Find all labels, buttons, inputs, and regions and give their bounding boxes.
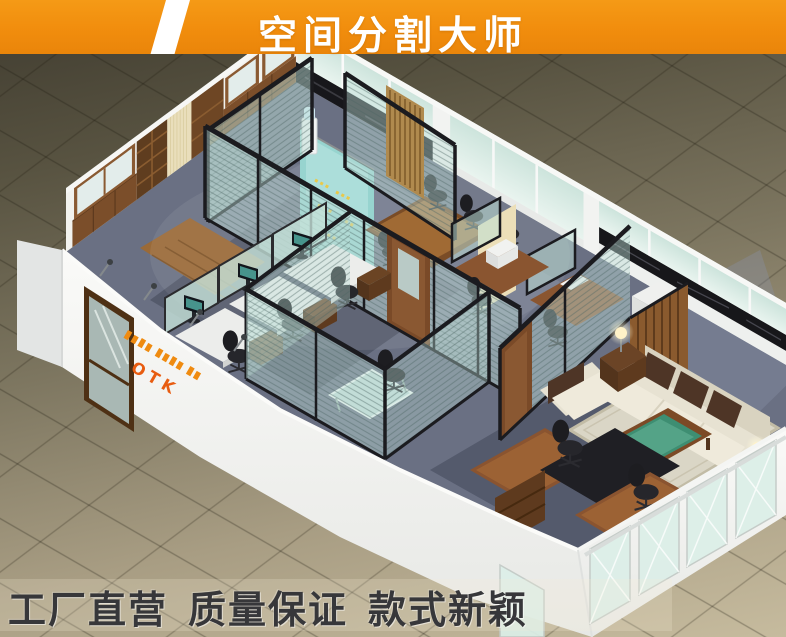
title-banner: 空间分割大师: [0, 0, 786, 54]
caption: 工厂直营 质量保证 款式新颖: [8, 580, 548, 632]
caption-phrase-1: 工厂直营: [8, 579, 168, 634]
office-render: OTK: [0, 0, 786, 637]
banner-title: 空间分割大师: [0, 5, 786, 61]
promo-image: OTK 空间分割大师: [0, 0, 786, 637]
caption-phrase-3: 款式新颖: [368, 579, 528, 634]
caption-phrase-2: 质量保证: [188, 579, 348, 634]
